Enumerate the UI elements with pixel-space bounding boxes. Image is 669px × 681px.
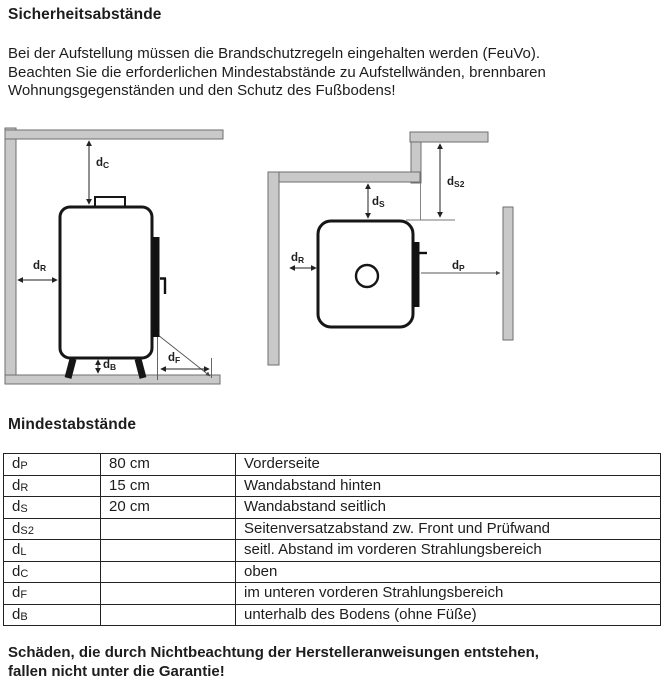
min-distances-table-body: dP80 cmVorderseitedR15 cmWandabstand hin…	[4, 454, 661, 626]
description-cell: Vorderseite	[236, 454, 661, 476]
stove-body	[60, 207, 152, 358]
manual-page: { "page": { "title": "Sicherheitsabständ…	[0, 0, 669, 680]
value-cell	[101, 583, 236, 605]
value-cell	[101, 604, 236, 626]
radiation-diagonal	[158, 335, 210, 376]
warranty-warning: Schäden, die durch Nichtbeachtung der He…	[8, 644, 663, 681]
intro-paragraph: Bei der Aufstellung müssen die Brandschu…	[8, 45, 663, 101]
intro-line: Bei der Aufstellung müssen die Brandschu…	[8, 45, 663, 64]
symbol-cell: dF	[4, 583, 101, 605]
symbol-cell: dR	[4, 475, 101, 497]
min-distances-table: dP80 cmVorderseitedR15 cmWandabstand hin…	[3, 453, 661, 626]
value-cell	[101, 540, 236, 562]
min-distances-heading: Mindestabstände	[8, 416, 136, 434]
table-row: dFim unteren vorderen Strahlungsbereich	[4, 583, 661, 605]
figure-front-view	[5, 128, 223, 384]
table-row: dBunterhalb des Bodens (ohne Füße)	[4, 604, 661, 626]
description-cell: Wandabstand hinten	[236, 475, 661, 497]
db-label: dB	[103, 359, 116, 372]
ceiling	[5, 130, 223, 139]
dr-label-front: dR	[33, 260, 46, 273]
symbol-cell: dP	[4, 454, 101, 476]
description-cell: Seitenversatzabstand zw. Front und Prüfw…	[236, 518, 661, 540]
intro-line: Beachten Sie die erforderlichen Mindesta…	[8, 64, 663, 83]
ds2-label: dS2	[447, 176, 464, 189]
description-cell: seitl. Abstand im vorderen Strahlungsber…	[236, 540, 661, 562]
description-cell: unterhalb des Bodens (ohne Füße)	[236, 604, 661, 626]
stove-door	[153, 237, 160, 337]
test-wall	[503, 207, 513, 340]
page-title: Sicherheitsabstände	[8, 6, 162, 24]
wall-left	[5, 128, 16, 384]
symbol-cell: dL	[4, 540, 101, 562]
symbol-cell: dS	[4, 497, 101, 519]
table-row: dCoben	[4, 561, 661, 583]
symbol-cell: dC	[4, 561, 101, 583]
stove-leg-left	[68, 359, 73, 378]
stove-door-top	[413, 242, 420, 307]
symbol-cell: dS2	[4, 518, 101, 540]
dp-label: dP	[452, 260, 465, 273]
table-row: dS2Seitenversatzabstand zw. Front und Pr…	[4, 518, 661, 540]
description-cell: im unteren vorderen Strahlungsbereich	[236, 583, 661, 605]
value-cell	[101, 518, 236, 540]
df-label: dF	[168, 352, 180, 365]
dc-label: dC	[96, 157, 109, 170]
value-cell	[101, 561, 236, 583]
warranty-warning-line: Schäden, die durch Nichtbeachtung der He…	[8, 644, 663, 663]
table-row: dP80 cmVorderseite	[4, 454, 661, 476]
value-cell: 80 cm	[101, 454, 236, 476]
dr-label-top: dR	[291, 252, 304, 265]
value-cell: 20 cm	[101, 497, 236, 519]
rear-wall	[268, 172, 420, 182]
flue-outlet	[356, 265, 378, 287]
warranty-warning-line: fallen nicht unter die Garantie!	[8, 663, 663, 681]
side-wall	[268, 172, 279, 365]
clearance-diagrams: dC dR dB dF dS dS2 dR dP	[0, 120, 669, 402]
table-row: dLseitl. Abstand im vorderen Strahlungsb…	[4, 540, 661, 562]
table-row: dS20 cmWandabstand seitlich	[4, 497, 661, 519]
figure-top-view	[268, 132, 513, 365]
table-row: dR15 cmWandabstand hinten	[4, 475, 661, 497]
floor	[5, 375, 220, 384]
ds-label: dS	[372, 196, 385, 209]
stove-leg-right	[138, 359, 143, 378]
description-cell: oben	[236, 561, 661, 583]
value-cell: 15 cm	[101, 475, 236, 497]
symbol-cell: dB	[4, 604, 101, 626]
door-handle	[160, 279, 166, 295]
description-cell: Wandabstand seitlich	[236, 497, 661, 519]
intro-line: Wohnungsgegenständen und den Schutz des …	[8, 82, 663, 101]
offset-wall-horizontal	[410, 132, 488, 142]
